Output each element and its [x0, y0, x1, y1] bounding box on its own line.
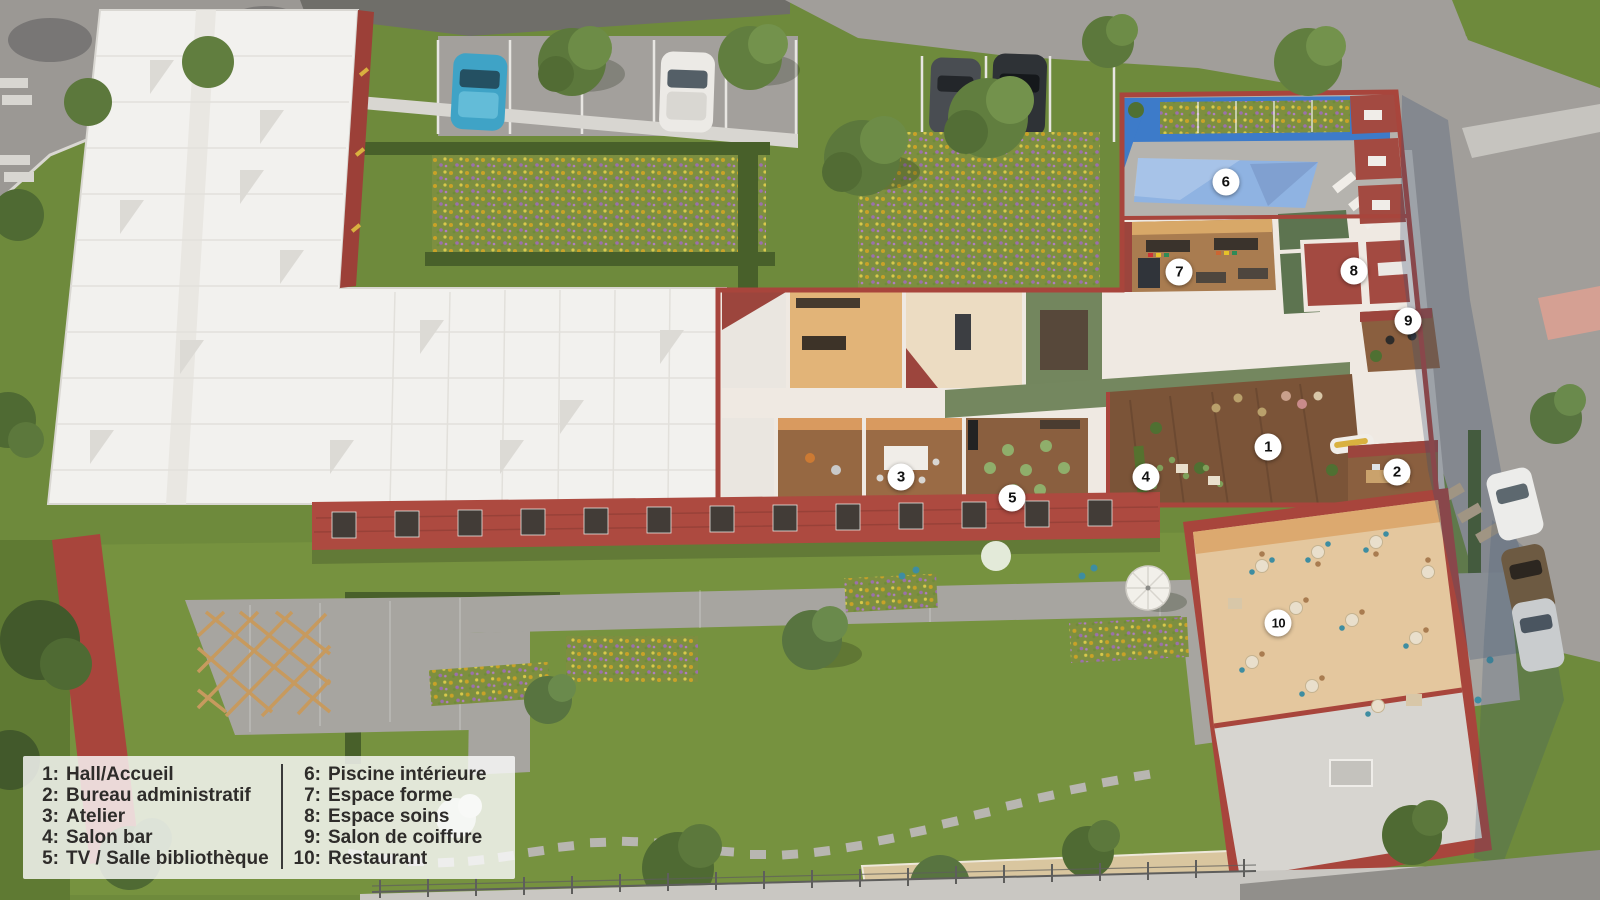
legend-item-label: Restaurant — [328, 848, 427, 869]
room-marker-5: 5 — [999, 484, 1026, 511]
room-marker-9: 9 — [1395, 308, 1422, 335]
garden-path-vertical — [468, 631, 530, 775]
legend-item: 3:Atelier — [29, 806, 281, 827]
site-plan-screenshot: 12345678910 1:Hall/Accueil2:Bureau admin… — [0, 0, 1600, 900]
legend-item: 7:Espace forme — [287, 785, 507, 806]
legend-item: 6:Piscine intérieure — [287, 764, 507, 785]
legend-item-number: 4: — [29, 827, 59, 848]
tv-screen — [968, 420, 978, 450]
legend-item: 1:Hall/Accueil — [29, 764, 281, 785]
legend-item-number: 10: — [287, 848, 321, 869]
legend-item-label: Espace forme — [328, 785, 453, 806]
plant — [1128, 102, 1144, 118]
legend-item-label: Hall/Accueil — [66, 764, 174, 785]
legend-item-number: 9: — [287, 827, 321, 848]
room-marker-3: 3 — [887, 464, 914, 491]
legend-item: 10:Restaurant — [287, 848, 507, 869]
legend-item-number: 7: — [287, 785, 321, 806]
legend-item-label: TV / Salle bibliothèque — [66, 848, 269, 869]
legend-item-label: Piscine intérieure — [328, 764, 486, 785]
room-marker-8: 8 — [1340, 257, 1367, 284]
room-marker-7: 7 — [1166, 258, 1193, 285]
car-white — [659, 51, 716, 133]
roof-vent — [1330, 760, 1372, 786]
legend-item-label: Bureau administratif — [66, 785, 251, 806]
room-marker-6: 6 — [1212, 168, 1239, 195]
legend-item-number: 5: — [29, 848, 59, 869]
room-marker-1: 1 — [1255, 434, 1282, 461]
gym — [1122, 219, 1276, 292]
white-flower-bush — [981, 541, 1011, 571]
atelier — [722, 418, 962, 506]
room-marker-4: 4 — [1132, 464, 1159, 491]
legend-item: 5:TV / Salle bibliothèque — [29, 848, 281, 869]
legend-column-left: 1:Hall/Accueil2:Bureau administratif3:At… — [29, 764, 281, 869]
legend-item-number: 3: — [29, 806, 59, 827]
legend-item-label: Salon bar — [66, 827, 153, 848]
tree — [64, 78, 112, 126]
tv-library — [966, 418, 1088, 506]
legend-item-label: Salon de coiffure — [328, 827, 482, 848]
legend-item-number: 8: — [287, 806, 321, 827]
legend: 1:Hall/Accueil2:Bureau administratif3:At… — [23, 756, 515, 879]
flower-meadow-left — [432, 148, 766, 254]
room-marker-10: 10 — [1265, 609, 1292, 636]
car-blue — [450, 53, 508, 132]
legend-item-number: 6: — [287, 764, 321, 785]
vertical-garden — [1160, 100, 1350, 134]
bedroom-kitchen-rooms — [722, 292, 1102, 388]
legend-item: 8:Espace soins — [287, 806, 507, 827]
legend-item-label: Atelier — [66, 806, 125, 827]
legend-item-number: 2: — [29, 785, 59, 806]
tree — [182, 36, 234, 88]
legend-item-label: Espace soins — [328, 806, 449, 827]
legend-column-right: 6:Piscine intérieure7:Espace forme8:Espa… — [281, 764, 507, 869]
room-marker-2: 2 — [1383, 458, 1410, 485]
legend-item: 4:Salon bar — [29, 827, 281, 848]
legend-item: 2:Bureau administratif — [29, 785, 281, 806]
legend-item-number: 1: — [29, 764, 59, 785]
legend-item: 9:Salon de coiffure — [287, 827, 507, 848]
